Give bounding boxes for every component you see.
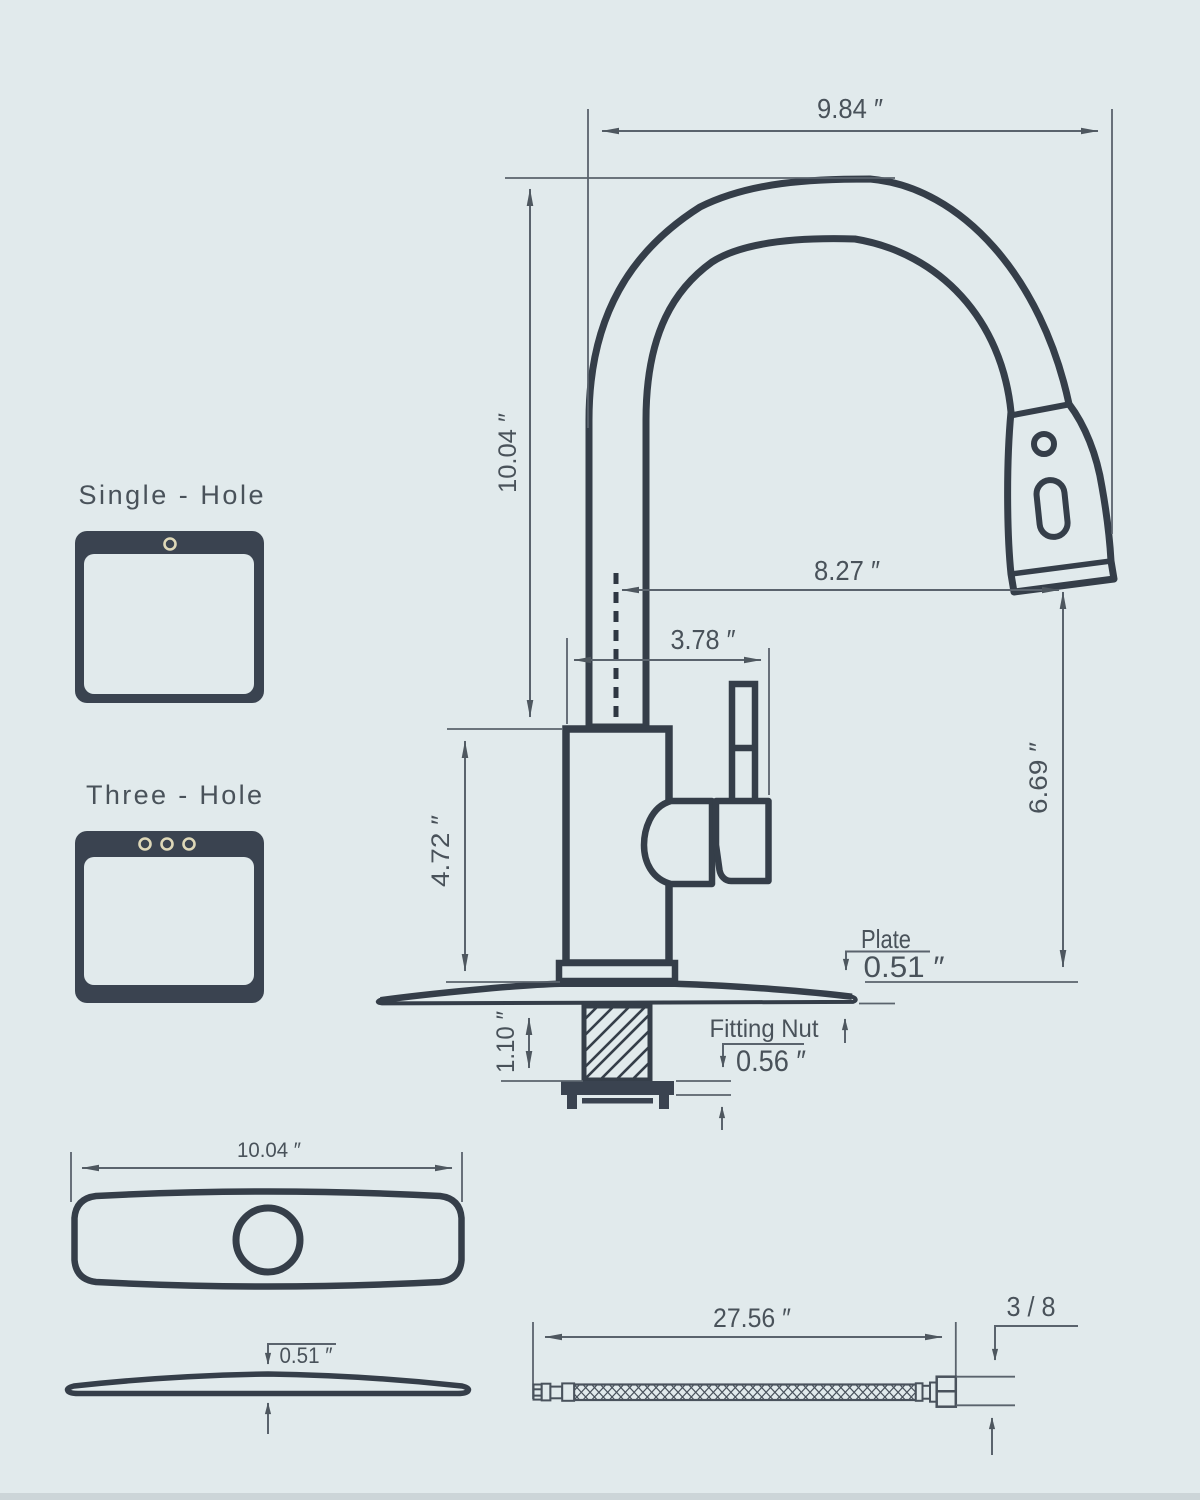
svg-text:8.27 ″: 8.27 ″ [814,555,880,586]
svg-text:10.04 ″: 10.04 ″ [237,1139,302,1162]
svg-text:0.56 ″: 0.56 ″ [736,1045,806,1078]
svg-text:4.72 ″: 4.72 ″ [427,815,455,887]
svg-text:3 / 8: 3 / 8 [1007,1291,1056,1322]
svg-text:10.04 ″: 10.04 ″ [494,413,522,493]
svg-text:6.69 ″: 6.69 ″ [1025,742,1053,814]
svg-text:0.51 ″: 0.51 ″ [280,1343,333,1368]
svg-text:3.78 ″: 3.78 ″ [671,624,736,655]
svg-text:Plate: Plate [861,924,911,954]
svg-text:Three - Hole: Three - Hole [86,780,262,810]
svg-text:Fitting Nut: Fitting Nut [710,1015,819,1043]
svg-text:27.56 ″: 27.56 ″ [713,1303,791,1333]
svg-text:9.84 ″: 9.84 ″ [817,93,883,124]
svg-text:0.51 ″: 0.51 ″ [864,951,945,984]
svg-text:1.10 ″: 1.10 ″ [492,1011,520,1073]
